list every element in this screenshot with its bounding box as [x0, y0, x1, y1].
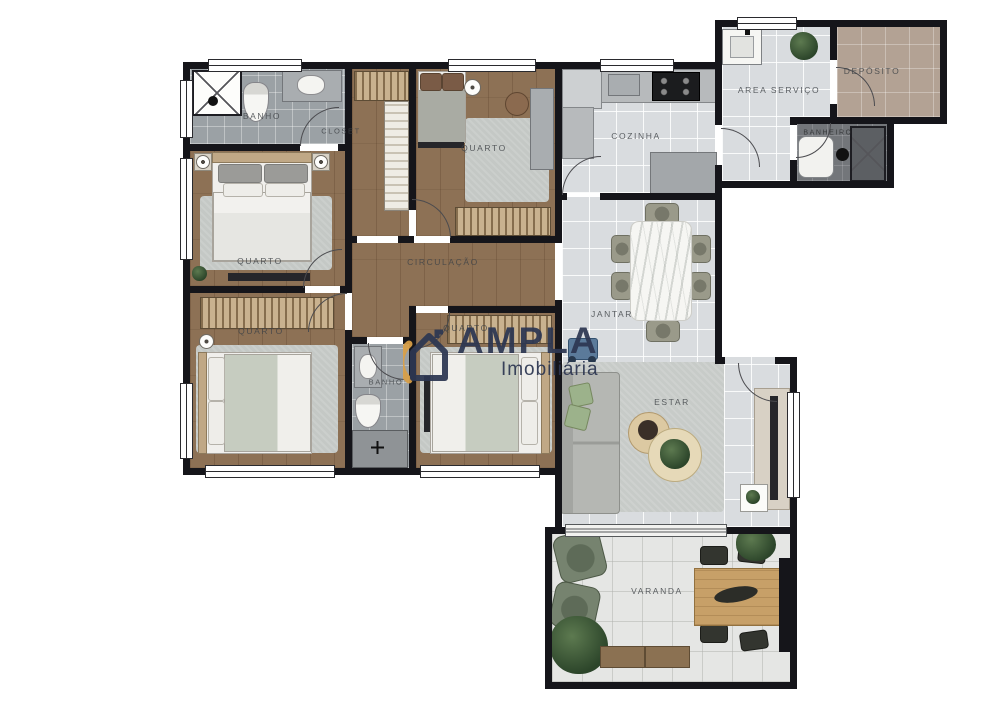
- window: [205, 465, 335, 478]
- table-lamp: [196, 155, 210, 169]
- stool: [836, 148, 849, 161]
- room-label-varanda: VARANDA: [631, 586, 683, 596]
- pillow: [208, 357, 225, 401]
- table-lamp: [199, 334, 214, 349]
- room-label-jantar: JANTAR: [591, 309, 633, 319]
- bench: [600, 646, 690, 668]
- wall: [727, 527, 797, 534]
- floor-plan: BANHO QUARTO CLOSET QUARTO CIRCULAÇÃO QU…: [0, 0, 1000, 720]
- pillow: [223, 183, 263, 197]
- plant: [746, 490, 760, 504]
- headboard: [212, 152, 312, 163]
- room-label-quarto-suite: QUARTO: [237, 256, 283, 266]
- pillow: [208, 401, 225, 445]
- brand-name: AMPLA: [457, 322, 599, 359]
- shower-valve: [371, 441, 384, 454]
- desk-chair: [505, 92, 529, 116]
- wall: [345, 330, 352, 475]
- tv: [770, 396, 778, 500]
- ceiling-lamp: [464, 79, 481, 96]
- dining-chair: [646, 320, 680, 342]
- room-label-banho-suite: BANHO: [243, 111, 281, 121]
- room-label-quarto-3: QUARTO: [238, 326, 284, 336]
- shower-box: [192, 70, 242, 116]
- sink-basin: [297, 75, 325, 95]
- room-label-banho-social: BANHO: [369, 378, 404, 387]
- outdoor-chair: [700, 624, 728, 643]
- table-lamp: [314, 155, 328, 169]
- window: [180, 80, 193, 138]
- room-label-estar: ESTAR: [654, 397, 690, 407]
- fridge: [562, 69, 602, 109]
- kitchen-cabinet: [562, 107, 594, 159]
- dining-chair: [689, 272, 711, 300]
- closet-rail: [354, 71, 409, 101]
- dining-table: [630, 221, 692, 321]
- wall: [830, 20, 837, 60]
- wall: [715, 20, 722, 125]
- room-label-deposito: DEPÓSITO: [844, 66, 901, 76]
- duvet: [418, 90, 466, 143]
- stove: [652, 72, 700, 101]
- shower-head: [208, 96, 218, 106]
- window: [420, 465, 540, 478]
- wall: [183, 144, 300, 151]
- pillow: [521, 401, 538, 445]
- duvet: [213, 192, 311, 261]
- wall: [779, 558, 797, 652]
- wall: [345, 62, 352, 293]
- headboard: [198, 352, 207, 454]
- tv-console: [228, 273, 310, 281]
- plant: [192, 266, 207, 281]
- pillow: [442, 73, 464, 91]
- window: [787, 392, 800, 498]
- plant: [660, 439, 690, 469]
- outdoor-chair: [739, 629, 769, 652]
- plant: [790, 32, 818, 60]
- wardrobe: [455, 207, 551, 236]
- wall: [940, 20, 947, 124]
- wall: [545, 682, 797, 689]
- pillow: [264, 164, 308, 183]
- window: [208, 59, 302, 72]
- wall: [600, 193, 722, 200]
- window: [737, 17, 797, 30]
- kitchen-island: [650, 152, 717, 195]
- hall-circulacao-floor-2: [352, 293, 409, 337]
- wall: [887, 117, 894, 188]
- wall: [450, 236, 562, 243]
- shower-box: [850, 126, 886, 182]
- closet-shelves: [384, 101, 409, 211]
- window: [180, 383, 193, 459]
- room-label-quarto-2: QUARTO: [461, 143, 507, 153]
- bed-bench: [418, 142, 464, 148]
- pillow: [218, 164, 262, 183]
- room-label-banheiro-servico: BANHEIRO: [803, 130, 852, 137]
- wall: [715, 165, 722, 364]
- wall: [790, 160, 797, 188]
- window: [180, 158, 193, 260]
- sliding-door: [565, 524, 727, 537]
- house-icon: [403, 322, 451, 388]
- window: [600, 59, 674, 72]
- watermark-text: AMPLA Imobiliária: [457, 322, 599, 379]
- wall: [555, 62, 562, 240]
- room-label-cozinha: COZINHA: [611, 131, 660, 141]
- desk: [530, 88, 554, 170]
- wall: [830, 104, 837, 124]
- tank-basin: [730, 36, 754, 58]
- duvet: [224, 354, 311, 452]
- room-label-closet: CLOSET: [321, 127, 361, 136]
- wall: [183, 286, 305, 293]
- dining-chair: [689, 235, 711, 263]
- room-label-area-servico: AREA SERVIÇO: [738, 85, 820, 95]
- outdoor-chair: [700, 546, 728, 565]
- room-label-circulacao: CIRCULAÇÃO: [407, 257, 479, 267]
- brand-tagline: Imobiliária: [501, 360, 599, 379]
- wall: [715, 181, 894, 188]
- wall: [409, 62, 416, 210]
- wall: [545, 527, 552, 689]
- pillow: [420, 73, 442, 91]
- wall: [448, 306, 562, 313]
- pillow: [265, 183, 305, 197]
- watermark-logo: AMPLA Imobiliária: [403, 322, 618, 394]
- window: [448, 59, 536, 72]
- kitchen-sink: [608, 74, 640, 96]
